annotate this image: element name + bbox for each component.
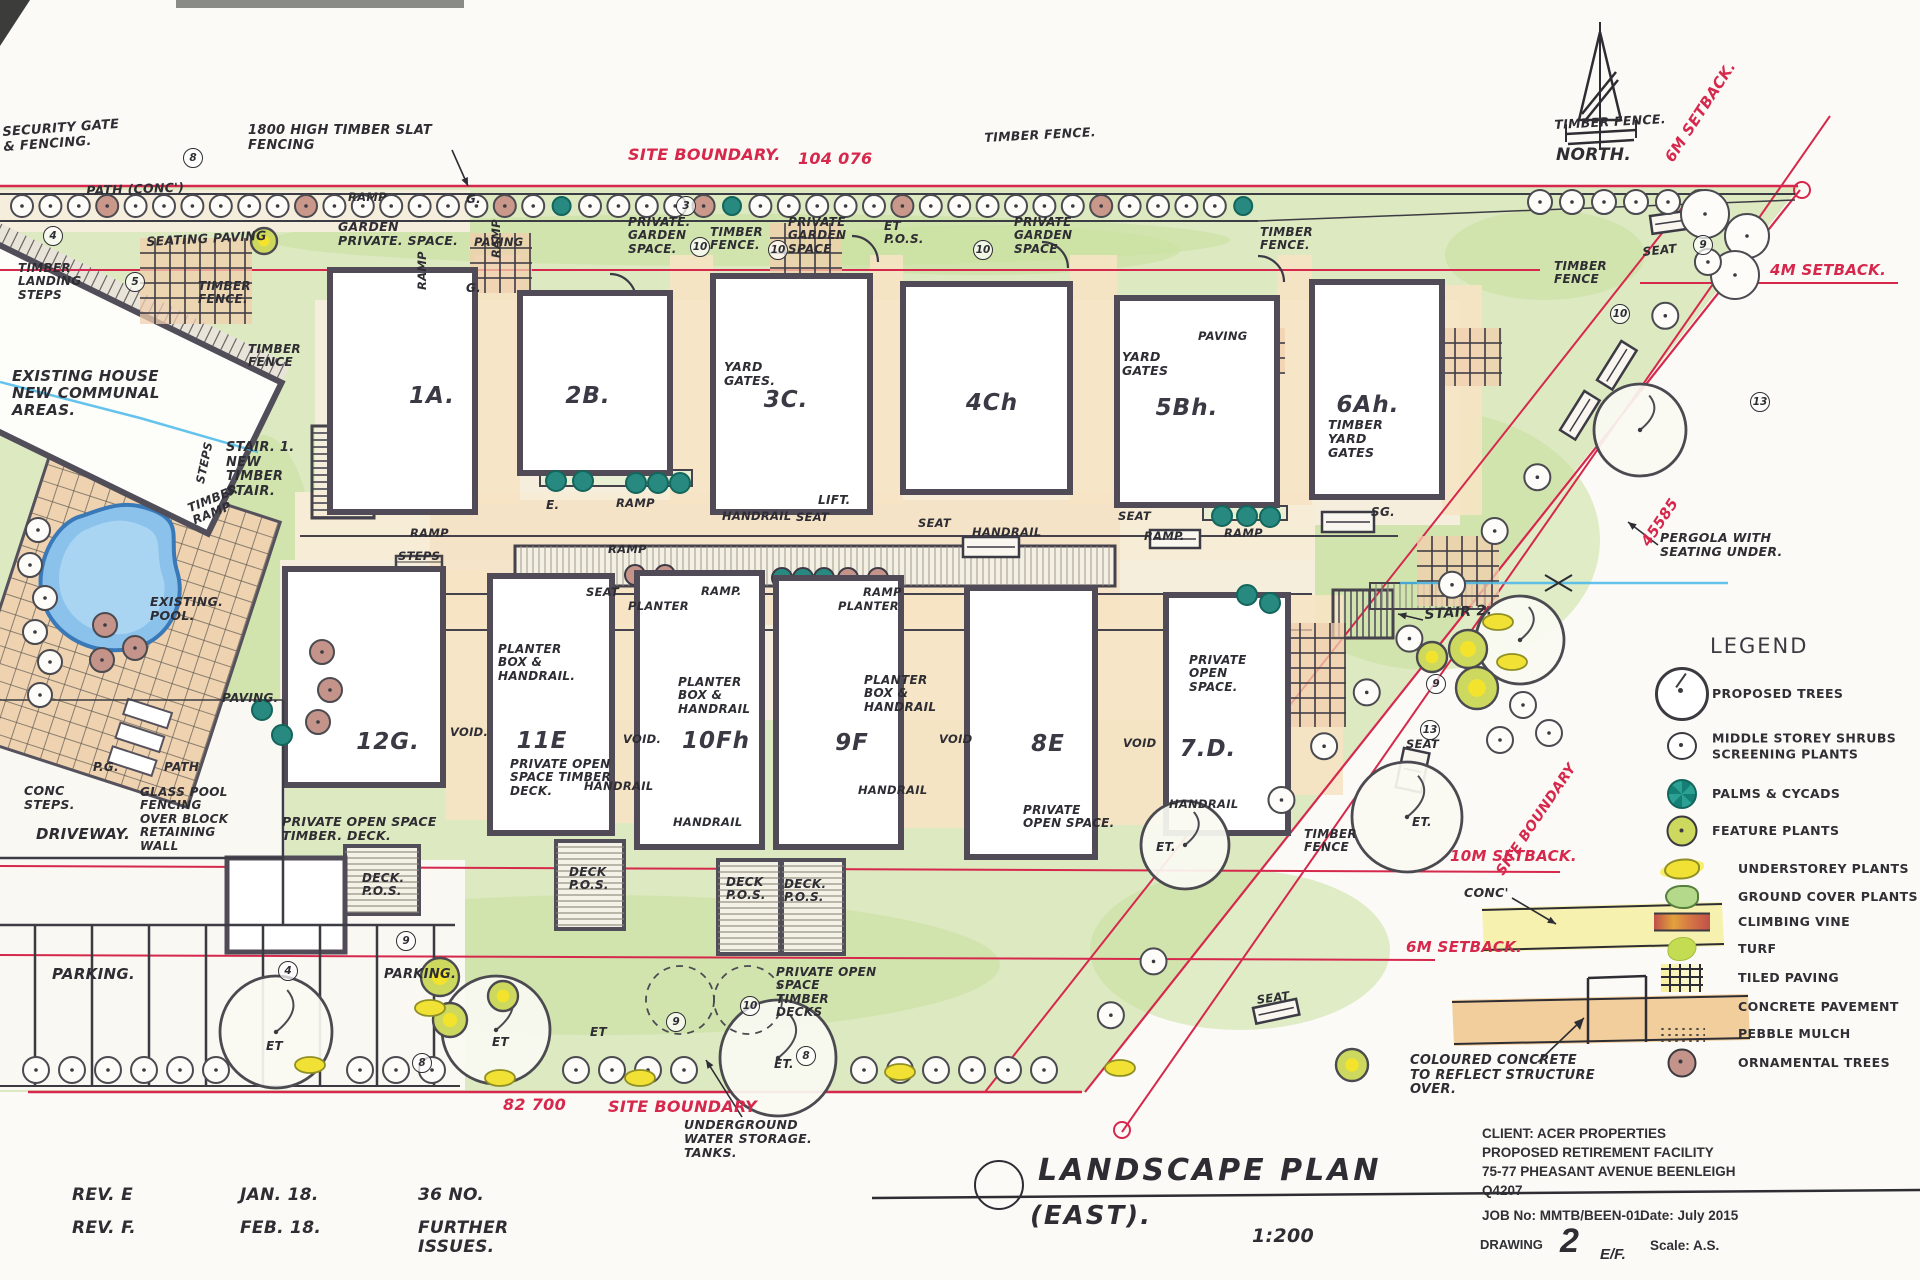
plan-drawing xyxy=(0,0,1920,1280)
job-number: JOB No: MMTB/BEEN-01 xyxy=(1482,1208,1641,1223)
building-label-10fh: 10Fh xyxy=(682,728,750,754)
plant-schedule-number: 10 xyxy=(973,240,993,260)
legend-item-turf: TURF xyxy=(1648,935,1920,962)
drawing-number: 2 xyxy=(1560,1222,1579,1261)
groundcover-icon xyxy=(1665,885,1699,909)
building-label-4ch: 4Ch xyxy=(966,390,1018,416)
legend-item-pebble: PEBBLE MULCH xyxy=(1648,1021,1920,1047)
scale-field: Scale: A.S. xyxy=(1650,1238,1719,1253)
legend: LEGEND PROPOSED TREESMIDDLE STOREY SHRUB… xyxy=(1648,612,1920,1092)
feature-icon xyxy=(1667,816,1698,847)
pebble-icon xyxy=(1659,1026,1705,1042)
legend-item-label: PALMS & CYCADS xyxy=(1712,786,1840,802)
legend-item-palm: PALMS & CYCADS xyxy=(1648,777,1920,811)
legend-title: LEGEND xyxy=(1710,634,1808,658)
plant-schedule-number: 9 xyxy=(1426,674,1446,694)
legend-item-label: UNDERSTOREY PLANTS xyxy=(1738,861,1909,877)
client-line: CLIENT: ACER PROPERTIES xyxy=(1482,1126,1666,1141)
plant-schedule-number: 10 xyxy=(1610,304,1630,324)
legend-item-tiled: TILED PAVING xyxy=(1648,962,1920,994)
plant-schedule-number: 10 xyxy=(768,240,788,260)
building-label-7d: 7.D. xyxy=(1180,736,1237,762)
postcode-line: Q4207 xyxy=(1482,1183,1523,1198)
turf-icon xyxy=(1668,937,1697,961)
project-line: PROPOSED RETIREMENT FACILITY xyxy=(1482,1145,1714,1160)
building-label-12g: 12G. xyxy=(356,729,420,755)
legend-item-label: CONCRETE PAVEMENT xyxy=(1738,999,1899,1015)
scan-artifact-corner xyxy=(0,0,30,46)
plant-schedule-number: 8 xyxy=(412,1053,432,1073)
plant-schedule-number: 13 xyxy=(1750,392,1770,412)
building-label-9f: 9F xyxy=(835,730,869,756)
plant-schedule-number: 9 xyxy=(1693,235,1713,255)
plant-schedule-number: 9 xyxy=(666,1012,686,1032)
plant-schedule-number: 9 xyxy=(396,931,416,951)
legend-item-label: PROPOSED TREES xyxy=(1712,686,1843,702)
tiled-icon xyxy=(1661,964,1703,992)
building-label-8e: 8E xyxy=(1031,731,1065,757)
legend-item-none: CONCRETE PAVEMENT xyxy=(1648,994,1920,1020)
plant-schedule-number: 10 xyxy=(690,237,710,257)
drawing-label: DRAWING xyxy=(1480,1237,1543,1252)
legend-item-ornamental: ORNAMENTAL TREES xyxy=(1648,1048,1920,1078)
legend-item-label: TILED PAVING xyxy=(1738,970,1839,986)
legend-item-label: FEATURE PLANTS xyxy=(1712,823,1839,839)
legend-item-groundcover: GROUND COVER PLANTS xyxy=(1648,884,1920,910)
plant-schedule-number: 10 xyxy=(740,996,760,1016)
building-label-6ah: 6Ah. xyxy=(1337,392,1400,418)
palm-icon xyxy=(1667,779,1697,809)
legend-item-feature: FEATURE PLANTS xyxy=(1648,813,1920,849)
plant-schedule-number: 8 xyxy=(796,1046,816,1066)
landscape-plan-sheet: SECURITY GATE & FENCING.1800 HIGH TIMBER… xyxy=(0,0,1920,1280)
legend-item-shrub: MIDDLE STOREY SHRUBS SCREENING PLANTS xyxy=(1648,724,1920,768)
plant-schedule-number: 3 xyxy=(676,196,696,216)
address-line: 75-77 PHEASANT AVENUE BEENLEIGH xyxy=(1482,1164,1736,1179)
scan-artifact-strip xyxy=(176,0,464,8)
plant-schedule-number: 5 xyxy=(125,272,145,292)
vine-icon xyxy=(1654,913,1710,932)
legend-item-label: GROUND COVER PLANTS xyxy=(1738,889,1918,905)
legend-item-label: CLIMBING VINE xyxy=(1738,914,1850,930)
legend-item-label: TURF xyxy=(1738,941,1776,957)
understorey-icon xyxy=(1664,859,1700,880)
legend-item-label: MIDDLE STOREY SHRUBS SCREENING PLANTS xyxy=(1712,730,1896,761)
plant-schedule-number: 8 xyxy=(183,148,203,168)
drawing-title-circle-icon xyxy=(974,1160,1024,1210)
legend-item-label: PEBBLE MULCH xyxy=(1738,1026,1851,1042)
plant-schedule-number: 4 xyxy=(278,961,298,981)
legend-item-proposed-tree: PROPOSED TREES xyxy=(1648,667,1920,721)
plant-schedule-number: 4 xyxy=(43,226,63,246)
proposed-tree-icon xyxy=(1655,667,1709,721)
shrub-icon xyxy=(1667,732,1697,760)
legend-item-vine: CLIMBING VINE xyxy=(1648,909,1920,935)
none-icon xyxy=(1661,1004,1703,1010)
legend-item-understorey: UNDERSTOREY PLANTS xyxy=(1648,855,1920,883)
building-label-3c: 3C. xyxy=(764,387,809,413)
building-label-11e: 11E xyxy=(517,728,568,754)
date-field: Date: July 2015 xyxy=(1640,1208,1738,1223)
legend-item-label: ORNAMENTAL TREES xyxy=(1738,1055,1890,1071)
building-label-5bh: 5Bh. xyxy=(1156,395,1219,421)
building-label-2b: 2B. xyxy=(565,383,610,409)
ornamental-icon xyxy=(1668,1049,1697,1078)
plant-schedule-number: 13 xyxy=(1420,720,1440,740)
building-label-1a: 1A. xyxy=(409,383,455,409)
drawing-suffix: E/F. xyxy=(1600,1246,1626,1263)
